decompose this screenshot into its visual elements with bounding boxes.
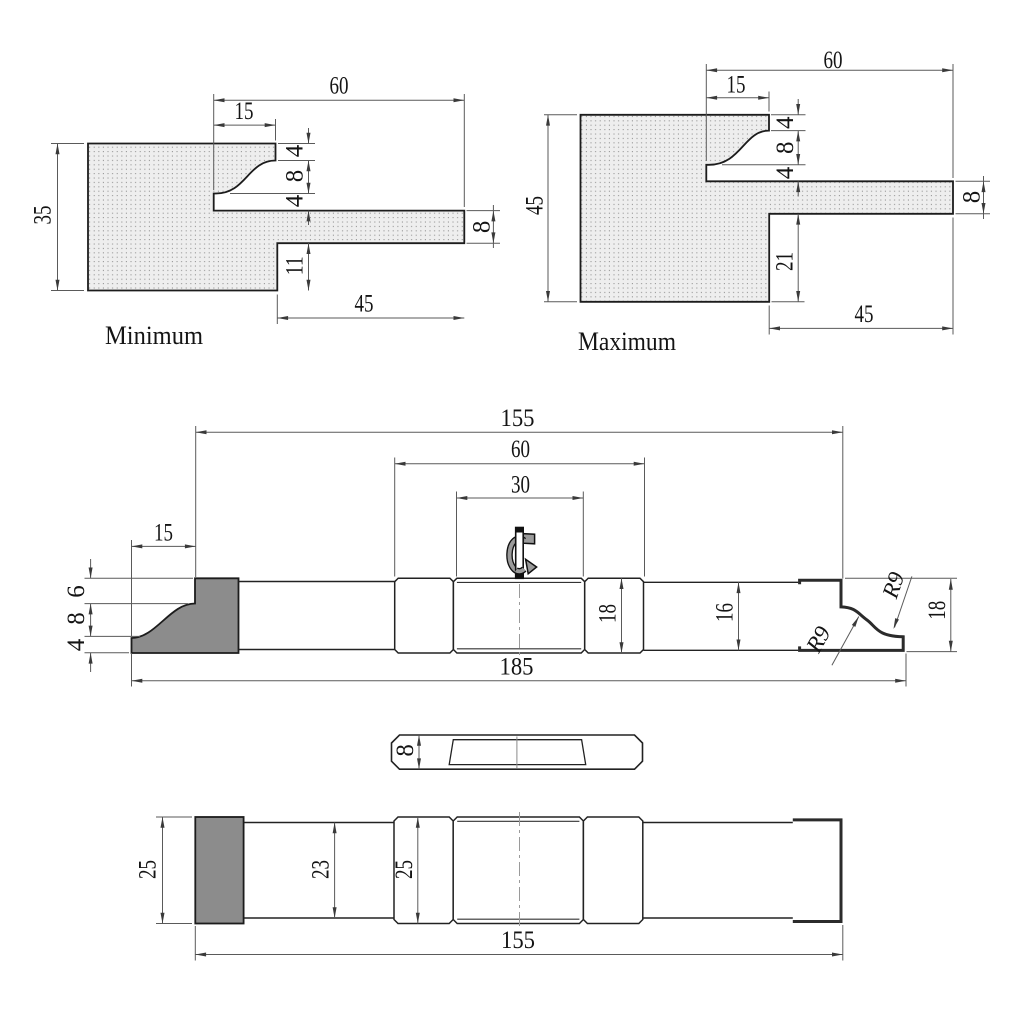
svg-text:8: 8 <box>392 744 419 757</box>
svg-text:18: 18 <box>924 601 951 620</box>
svg-text:15: 15 <box>154 519 173 546</box>
svg-text:8: 8 <box>772 141 799 154</box>
svg-text:45: 45 <box>355 291 374 318</box>
svg-text:4: 4 <box>63 638 90 651</box>
svg-text:60: 60 <box>330 73 349 100</box>
svg-text:4: 4 <box>772 166 799 179</box>
svg-text:16: 16 <box>712 603 739 622</box>
svg-text:25: 25 <box>135 860 162 879</box>
svg-text:21: 21 <box>772 252 799 271</box>
svg-text:8: 8 <box>469 221 496 234</box>
svg-text:8: 8 <box>959 191 986 204</box>
svg-text:Maximum: Maximum <box>578 327 676 356</box>
svg-text:23: 23 <box>308 860 335 879</box>
svg-text:4: 4 <box>772 116 799 129</box>
svg-text:185: 185 <box>500 654 534 681</box>
svg-text:25: 25 <box>391 860 418 879</box>
svg-text:Minimum: Minimum <box>105 321 203 350</box>
svg-text:18: 18 <box>595 604 622 623</box>
svg-text:11: 11 <box>282 256 309 275</box>
svg-text:4: 4 <box>282 144 309 157</box>
svg-text:6: 6 <box>63 585 90 598</box>
svg-text:155: 155 <box>501 405 535 432</box>
svg-text:45: 45 <box>522 196 549 215</box>
svg-text:30: 30 <box>511 472 530 499</box>
svg-text:8: 8 <box>63 612 90 625</box>
svg-text:8: 8 <box>282 170 309 183</box>
svg-text:15: 15 <box>727 71 746 98</box>
svg-text:4: 4 <box>282 194 309 207</box>
svg-text:60: 60 <box>511 436 530 463</box>
svg-text:35: 35 <box>30 206 57 225</box>
svg-text:155: 155 <box>501 927 535 954</box>
svg-text:15: 15 <box>235 98 254 125</box>
svg-text:60: 60 <box>824 47 843 74</box>
svg-text:45: 45 <box>855 301 874 328</box>
